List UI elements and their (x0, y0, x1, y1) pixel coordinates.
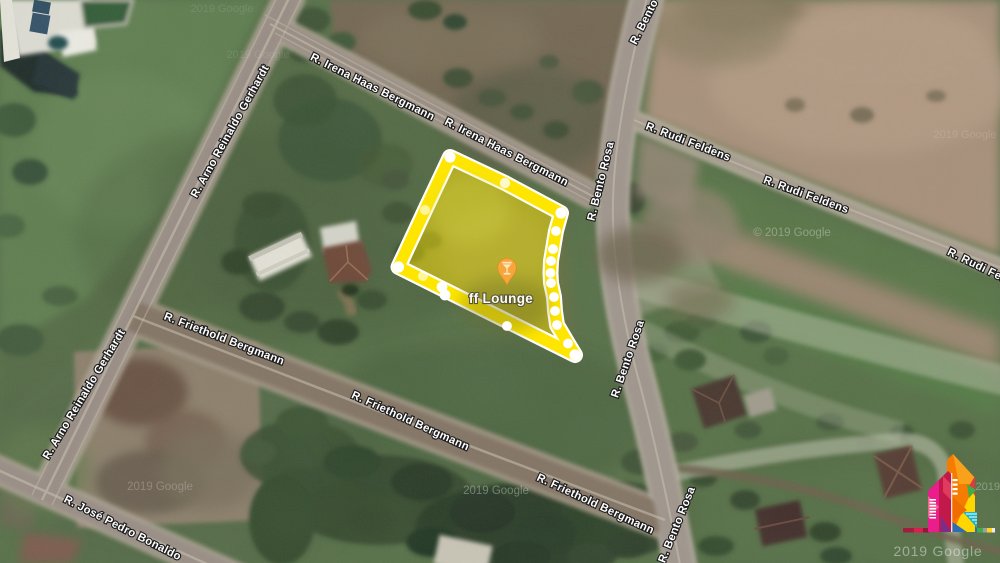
svg-text:2019 Google: 2019 Google (894, 543, 983, 559)
svg-text:2019 Google: 2019 Google (227, 49, 290, 61)
svg-text:2019 Google: 2019 Google (191, 3, 254, 15)
svg-text:© 2019 Google: © 2019 Google (753, 227, 831, 239)
svg-text:2019 Google: 2019 Google (934, 129, 997, 141)
svg-text:2019 Google: 2019 Google (127, 481, 193, 493)
svg-text:2019 Google: 2019 Google (976, 481, 1000, 493)
svg-text:ff Lounge: ff Lounge (469, 291, 533, 306)
svg-text:2019 Google: 2019 Google (463, 485, 529, 497)
